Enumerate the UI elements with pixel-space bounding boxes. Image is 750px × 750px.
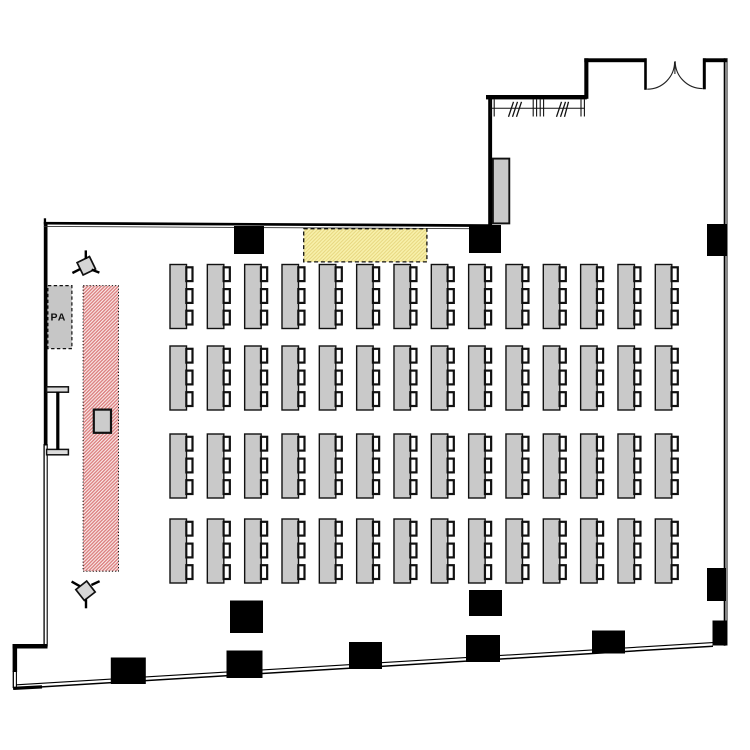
svg-text:PA: PA <box>51 312 67 324</box>
